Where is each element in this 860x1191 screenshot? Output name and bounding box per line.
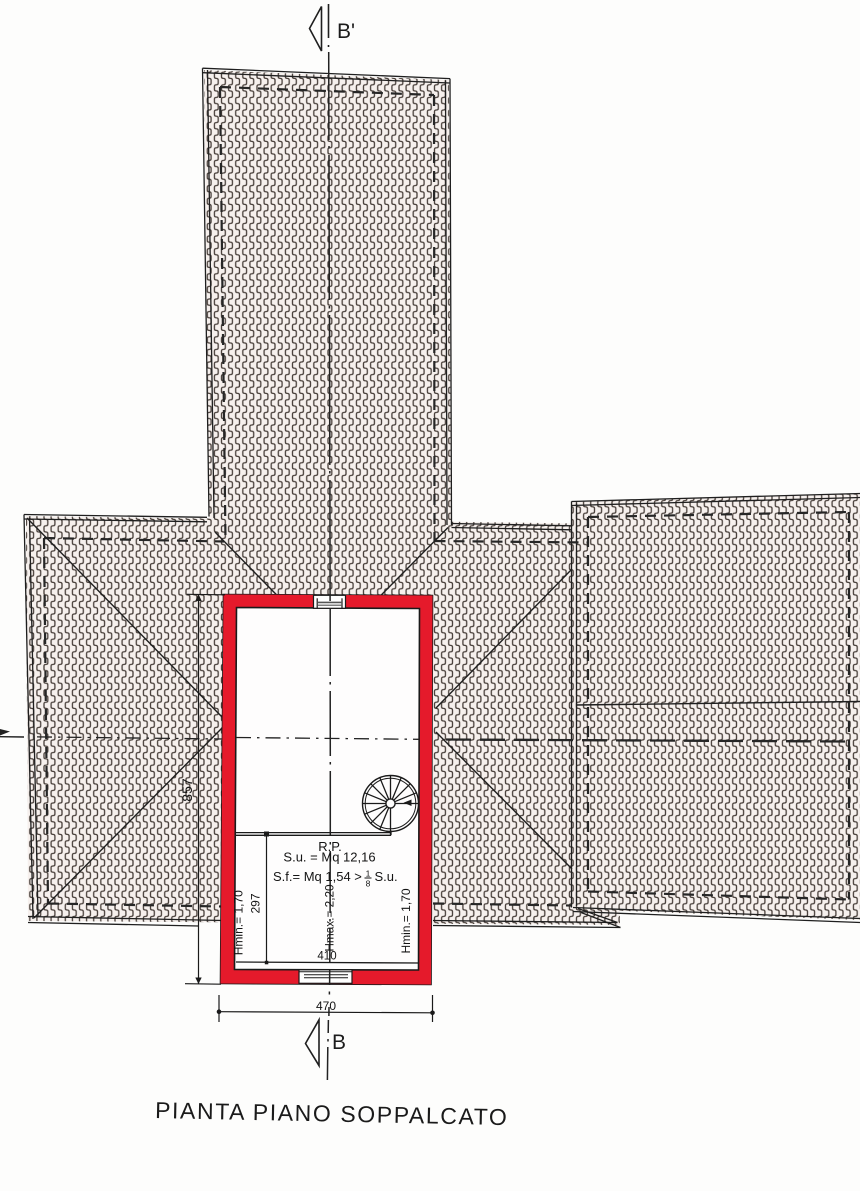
svg-text:8: 8 xyxy=(366,879,371,889)
svg-text:S.u. = Mq 12,16: S.u. = Mq 12,16 xyxy=(283,850,375,865)
svg-text:1: 1 xyxy=(366,869,371,879)
svg-text:B': B' xyxy=(337,20,355,43)
svg-text:Hmax.= 2,20: Hmax.= 2,20 xyxy=(323,884,337,952)
svg-text:Hmin.= 1,70: Hmin.= 1,70 xyxy=(232,890,246,955)
svg-text:Hmin.= 1,70: Hmin.= 1,70 xyxy=(399,888,413,953)
svg-text:PIANTA PIANO SOPPALCATO: PIANTA PIANO SOPPALCATO xyxy=(155,1097,509,1130)
svg-text:B: B xyxy=(332,1031,346,1054)
svg-text:470: 470 xyxy=(316,999,336,1013)
svg-text:S.u.: S.u. xyxy=(375,869,398,884)
svg-text:857: 857 xyxy=(179,778,195,802)
svg-text:S.f.= Mq 1,54 >: S.f.= Mq 1,54 > xyxy=(273,869,362,884)
svg-text:297: 297 xyxy=(249,893,263,913)
